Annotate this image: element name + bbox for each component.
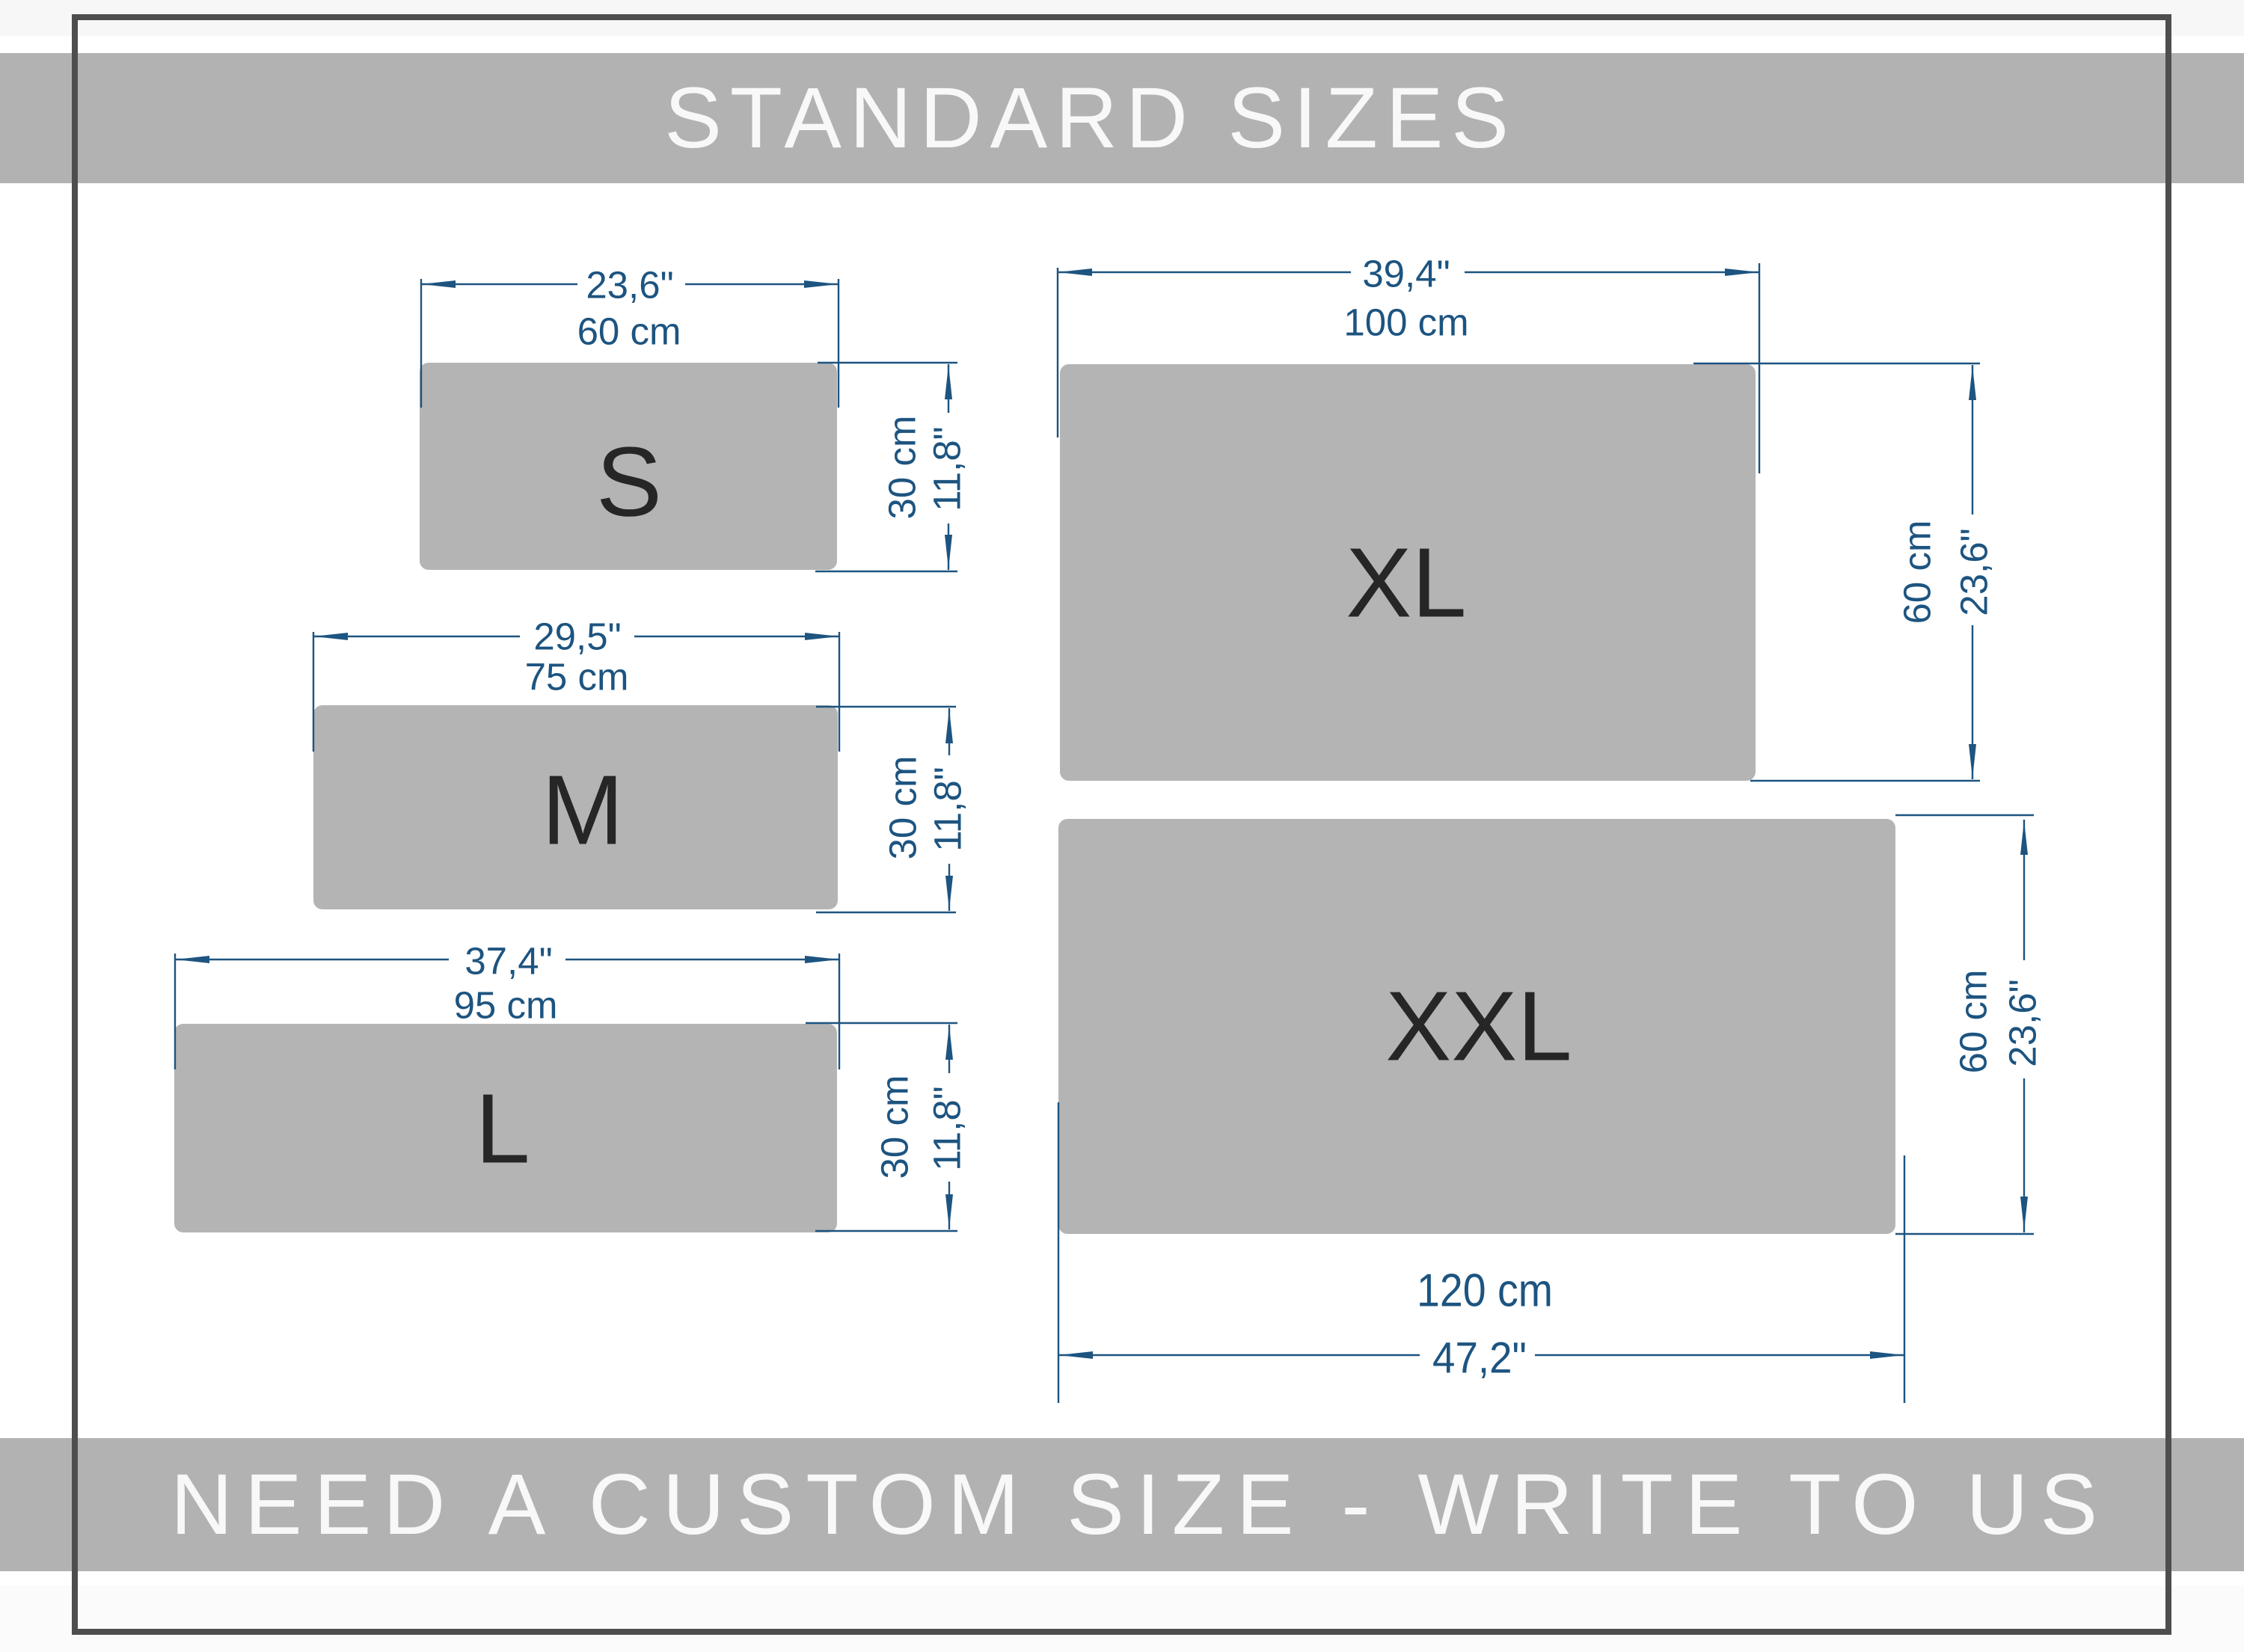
svg-text:30 cm: 30 cm xyxy=(874,1075,916,1179)
svg-text:29,5": 29,5" xyxy=(533,615,621,658)
svg-text:XXL: XXL xyxy=(1385,971,1572,1081)
svg-text:23,6": 23,6" xyxy=(586,264,673,307)
svg-text:11,8": 11,8" xyxy=(926,1086,969,1171)
svg-text:L: L xyxy=(475,1074,530,1184)
svg-text:30 cm: 30 cm xyxy=(882,756,925,860)
svg-text:47,2": 47,2" xyxy=(1432,1334,1527,1383)
svg-text:95 cm: 95 cm xyxy=(454,984,558,1027)
svg-text:11,8": 11,8" xyxy=(927,767,969,852)
svg-text:23,6": 23,6" xyxy=(2002,979,2044,1066)
svg-text:75 cm: 75 cm xyxy=(525,656,629,698)
svg-text:60 cm: 60 cm xyxy=(1896,521,1939,624)
svg-text:30 cm: 30 cm xyxy=(881,416,924,520)
svg-text:XL: XL xyxy=(1346,528,1466,638)
svg-text:120 cm: 120 cm xyxy=(1417,1265,1553,1317)
svg-text:60 cm: 60 cm xyxy=(577,310,681,353)
svg-text:M: M xyxy=(542,755,624,865)
svg-text:11,8": 11,8" xyxy=(926,426,969,512)
svg-text:39,4": 39,4" xyxy=(1362,253,1450,295)
svg-text:60 cm: 60 cm xyxy=(1952,970,1995,1074)
svg-text:S: S xyxy=(596,427,662,537)
svg-text:37,4": 37,4" xyxy=(465,940,552,983)
svg-text:100 cm: 100 cm xyxy=(1343,301,1468,344)
svg-text:23,6": 23,6" xyxy=(1953,528,1996,615)
